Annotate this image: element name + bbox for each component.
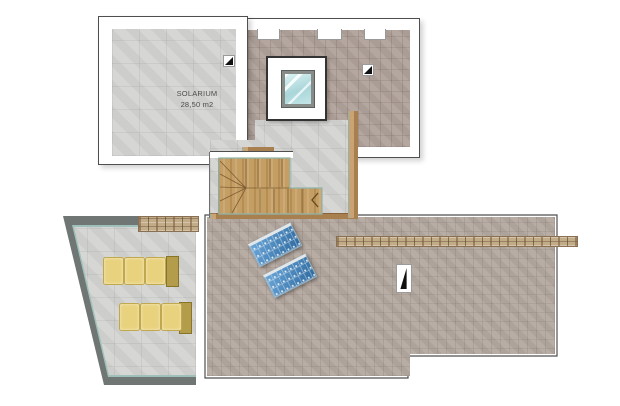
terrace-floor [60,212,212,390]
skylight-glass [285,74,311,104]
roof-drain-icon [362,64,374,76]
stone-wall-strip-right [336,236,578,247]
parapet-notch [257,29,280,40]
stairwell-left-outline [209,152,210,218]
lounger-frame [166,256,179,287]
parapet-notch [317,29,342,40]
roof-drain-icon [396,264,412,293]
floorplan-canvas: SOLARIUM 28,50 m2 [0,0,620,406]
parapet-notch [364,29,386,40]
staircase-lower-flight [218,188,322,214]
solarium-stair-border [210,151,293,158]
roof-drain-icon [223,55,235,67]
skylight-icon [266,56,327,121]
room-name: SOLARIUM [163,89,231,100]
room-area: 28,50 m2 [163,100,231,111]
stairwell-right-trim [348,111,358,218]
staircase-upper-flight [218,158,290,188]
solarium-label: SOLARIUM 28,50 m2 [163,89,231,110]
sun-lounger-icon [103,256,179,287]
skylight-frame [281,70,315,108]
stone-wall-strip-left [138,216,199,232]
sun-lounger-icon [119,302,192,334]
